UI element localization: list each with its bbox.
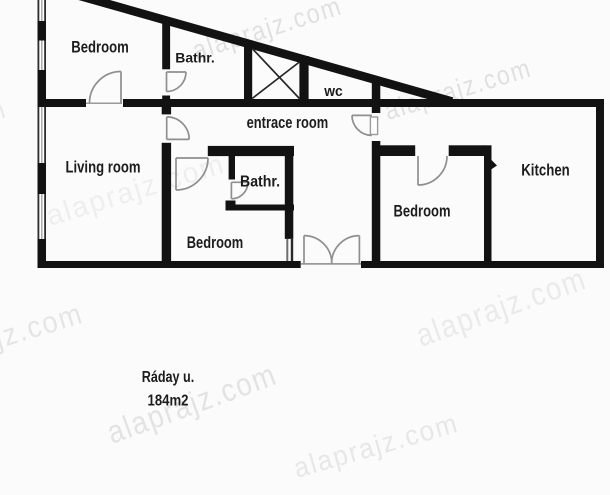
svg-text:Bedroom: Bedroom [394,201,451,220]
svg-text:wc: wc [323,83,342,100]
svg-text:Living room: Living room [66,158,141,177]
svg-text:Bedroom: Bedroom [71,37,129,56]
svg-text:Bathr.: Bathr. [175,50,215,66]
svg-text:Ráday u.: Ráday u. [142,369,195,386]
svg-text:entrace room: entrace room [247,113,329,132]
svg-text:Bathr.: Bathr. [240,173,280,190]
svg-text:Bedroom: Bedroom [187,233,244,252]
svg-text:184m2: 184m2 [148,393,189,410]
svg-text:Kitchen: Kitchen [521,161,570,180]
